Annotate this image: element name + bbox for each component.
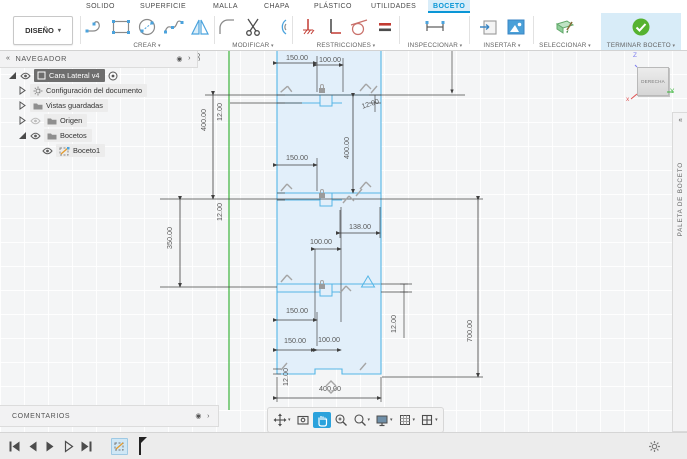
tab-malla[interactable]: MALLA bbox=[213, 0, 238, 13]
trim-scissors-icon[interactable] bbox=[242, 16, 263, 38]
group-crear: CREAR bbox=[84, 13, 210, 50]
group-separator bbox=[533, 16, 534, 44]
viewports-icon bbox=[420, 413, 434, 427]
decal-image-icon[interactable] bbox=[505, 16, 527, 38]
spline-tool-icon[interactable] bbox=[163, 16, 184, 38]
inspeccionar-dropdown[interactable]: INSPECCIONAR bbox=[404, 42, 466, 49]
skip-to-start-button[interactable] bbox=[8, 440, 21, 453]
hand-pan-icon bbox=[315, 413, 329, 427]
expanded-arrow-icon[interactable] bbox=[18, 131, 27, 140]
tree-item-label: Vistas guardadas bbox=[46, 101, 103, 110]
dim-value[interactable]: 400.00 bbox=[199, 109, 208, 131]
chevron-down-icon: ▾ bbox=[435, 417, 438, 423]
view-cube[interactable]: Z DERECHA Y x bbox=[626, 52, 684, 104]
dim-value[interactable]: 12.00 bbox=[281, 368, 290, 386]
group-separator bbox=[214, 16, 215, 44]
collapsed-arrow-icon[interactable] bbox=[18, 101, 27, 110]
comments-settings-icon[interactable]: ◉ bbox=[195, 412, 202, 420]
restricciones-dropdown[interactable]: RESTRICCIONES bbox=[296, 42, 396, 49]
fillet-tool-icon[interactable] bbox=[216, 16, 237, 38]
finish-check-icon bbox=[630, 16, 652, 38]
mirror-tool-icon[interactable] bbox=[189, 16, 210, 38]
equal-constraint-icon[interactable] bbox=[375, 16, 395, 38]
folder-icon bbox=[33, 102, 43, 110]
gear-icon bbox=[33, 86, 43, 96]
skip-to-end-button[interactable] bbox=[80, 440, 93, 453]
step-forward-button[interactable] bbox=[62, 440, 75, 453]
dim-value[interactable]: 12.00 bbox=[389, 315, 398, 333]
sketch-palette-strip[interactable]: « PALETA DE BOCETO bbox=[672, 112, 687, 432]
terminar-boceto-button[interactable]: TERMINAR BOCETO bbox=[601, 13, 681, 50]
select-tool-icon[interactable] bbox=[553, 16, 577, 38]
fit-zoom-window-button[interactable]: ▾ bbox=[351, 412, 373, 428]
offset-tool-icon[interactable] bbox=[269, 16, 290, 38]
tree-item-label: Configuración del documento bbox=[46, 86, 142, 95]
look-at-icon bbox=[296, 413, 310, 427]
document-title: Cara Lateral v4 bbox=[49, 71, 100, 80]
insertar-dropdown[interactable]: INSERTAR bbox=[472, 42, 532, 49]
rectangle-tool-icon[interactable] bbox=[110, 16, 131, 38]
folder-icon bbox=[47, 132, 57, 140]
timeline-bar bbox=[0, 432, 687, 459]
dim-value[interactable]: 400.00 bbox=[342, 137, 351, 159]
tree-row-sketch1[interactable]: Boceto1 bbox=[42, 144, 105, 157]
group-inspeccionar: INSPECCIONAR bbox=[404, 13, 466, 50]
navigator-panel: « NAVEGADOR ◉ › Cara Lateral v4 Configur… bbox=[0, 50, 198, 68]
expanded-arrow-icon[interactable] bbox=[8, 71, 17, 80]
play-button[interactable] bbox=[44, 440, 57, 453]
tree-item-label: Bocetos bbox=[60, 131, 87, 140]
tab-boceto-active[interactable]: BOCETO bbox=[428, 0, 470, 13]
grid-icon bbox=[398, 413, 412, 427]
ribbon: SOLIDO SUPERFICIE MALLA CHAPA PLÁSTICO U… bbox=[0, 0, 687, 51]
sketch-profile[interactable] bbox=[277, 50, 381, 374]
timeline-settings-gear-icon[interactable] bbox=[648, 440, 661, 453]
insert-dxf-icon[interactable] bbox=[478, 16, 500, 38]
tangent-constraint-icon[interactable] bbox=[348, 16, 370, 38]
perpendicular-constraint-icon[interactable] bbox=[323, 16, 343, 38]
comments-expand-icon[interactable]: › bbox=[207, 413, 210, 420]
group-seleccionar: SELECCIONAR bbox=[536, 13, 594, 50]
zoom-button[interactable] bbox=[332, 412, 350, 428]
tab-solido[interactable]: SOLIDO bbox=[86, 0, 115, 13]
visibility-eye-icon[interactable] bbox=[42, 147, 53, 155]
dim-value[interactable]: 150.00 bbox=[286, 153, 308, 162]
fix-constraint-icon[interactable] bbox=[298, 16, 318, 38]
view-cube-axes bbox=[626, 52, 684, 104]
group-separator bbox=[399, 16, 400, 44]
sketch-icon bbox=[59, 146, 70, 156]
design-menu-label: DISEÑO bbox=[25, 26, 54, 35]
collapsed-arrow-icon[interactable] bbox=[18, 116, 27, 125]
radio-active-icon[interactable] bbox=[108, 71, 118, 81]
dim-value[interactable]: 100.00 bbox=[310, 237, 332, 246]
tree-item-label: Origen bbox=[60, 116, 82, 125]
viewports-button[interactable]: ▾ bbox=[418, 412, 440, 428]
panel-settings-icon[interactable]: ◉ bbox=[176, 55, 183, 63]
panel-expand-icon[interactable]: › bbox=[188, 55, 191, 62]
display-settings-button[interactable]: ▾ bbox=[373, 412, 395, 428]
monitor-icon bbox=[375, 413, 389, 427]
timeline-sketch-feature[interactable] bbox=[111, 438, 128, 455]
tree-row-root[interactable]: Cara Lateral v4 bbox=[8, 69, 118, 82]
group-modificar: MODIFICAR bbox=[216, 13, 290, 50]
dim-value[interactable]: 700.00 bbox=[465, 320, 474, 342]
step-back-button[interactable] bbox=[26, 440, 39, 453]
tree-row-saved-views[interactable]: Vistas guardadas bbox=[18, 99, 108, 112]
tab-plastico[interactable]: PLÁSTICO bbox=[314, 0, 352, 13]
tree-row-origin[interactable]: Origen bbox=[18, 114, 87, 127]
tab-utilidades[interactable]: UTILIDADES bbox=[371, 0, 416, 13]
line-tool-icon[interactable] bbox=[84, 16, 105, 38]
tree-row-sketches[interactable]: Bocetos bbox=[18, 129, 92, 142]
visibility-eye-icon[interactable] bbox=[30, 132, 41, 140]
look-at-button[interactable] bbox=[294, 412, 312, 428]
group-restricciones: RESTRICCIONES bbox=[296, 13, 396, 50]
comments-bar[interactable]: COMENTARIOS ◉ › bbox=[0, 405, 219, 427]
playback-controls bbox=[8, 440, 93, 453]
move-arrows-icon bbox=[273, 413, 287, 427]
group-separator bbox=[292, 16, 293, 44]
chevron-down-icon: ▾ bbox=[413, 417, 416, 423]
pan-orbit-button[interactable]: ▾ bbox=[271, 412, 293, 428]
dim-value[interactable]: 150.00 bbox=[284, 336, 306, 345]
timeline-marker[interactable] bbox=[136, 435, 148, 457]
visibility-eye-icon[interactable] bbox=[20, 72, 31, 80]
modificar-dropdown[interactable]: MODIFICAR bbox=[216, 42, 290, 49]
dim-value[interactable]: 100.00 bbox=[319, 55, 341, 64]
navigator-title: NAVEGADOR bbox=[16, 54, 68, 63]
zoom-plus-icon bbox=[334, 413, 348, 427]
design-menu-button[interactable]: DISEÑO ▾ bbox=[13, 16, 73, 45]
tree-row-doc-settings[interactable]: Configuración del documento bbox=[18, 84, 147, 97]
chevron-down-icon: ▾ bbox=[368, 417, 371, 423]
terminar-boceto-label: TERMINAR BOCETO bbox=[601, 42, 681, 49]
navigator-header: « NAVEGADOR ◉ › bbox=[0, 50, 198, 68]
document-icon bbox=[37, 71, 46, 80]
magnifier-icon bbox=[353, 413, 367, 427]
crear-dropdown[interactable]: CREAR bbox=[84, 42, 210, 49]
dim-value[interactable]: 12.00 bbox=[215, 103, 224, 121]
expand-palette-icon[interactable]: « bbox=[679, 117, 683, 124]
group-separator bbox=[469, 16, 470, 44]
grid-snaps-button[interactable]: ▾ bbox=[396, 412, 418, 428]
visibility-eye-off-icon[interactable] bbox=[30, 117, 41, 125]
tab-chapa[interactable]: CHAPA bbox=[264, 0, 290, 13]
tree-item-label: Boceto1 bbox=[73, 146, 100, 155]
collapsed-arrow-icon[interactable] bbox=[18, 86, 27, 95]
chevron-down-icon: ▾ bbox=[58, 27, 61, 34]
collapse-panel-icon[interactable]: « bbox=[6, 55, 11, 62]
tab-superficie[interactable]: SUPERFICIE bbox=[140, 0, 186, 13]
dim-value[interactable]: 350.00 bbox=[165, 227, 174, 249]
sketch-feature-icon bbox=[114, 441, 125, 452]
fusion360-window: 150.00 100.00 400.00 12.00 400.00 12.00 … bbox=[0, 0, 687, 459]
chevron-down-icon: ▾ bbox=[390, 417, 393, 423]
dim-value[interactable]: 12.00 bbox=[215, 203, 224, 221]
dim-value[interactable]: 150.00 bbox=[286, 306, 308, 315]
group-separator bbox=[80, 16, 81, 44]
measure-tool-icon[interactable] bbox=[423, 16, 447, 38]
dim-value[interactable]: 150.00 bbox=[286, 53, 308, 62]
group-insertar: INSERTAR bbox=[472, 13, 532, 50]
navigation-toolbar: ▾ ▾ ▾ ▾ ▾ bbox=[267, 407, 444, 433]
dim-value[interactable]: 138.00 bbox=[349, 222, 371, 231]
sketch-palette-label: PALETA DE BOCETO bbox=[677, 162, 684, 236]
pan-hand-button-active[interactable] bbox=[313, 412, 331, 428]
circle-tool-icon[interactable] bbox=[136, 16, 157, 38]
chevron-down-icon: ▾ bbox=[288, 417, 291, 423]
dim-value[interactable]: 100.00 bbox=[318, 335, 340, 344]
seleccionar-dropdown[interactable]: SELECCIONAR bbox=[536, 42, 594, 49]
comments-label: COMENTARIOS bbox=[12, 413, 70, 420]
folder-icon bbox=[47, 117, 57, 125]
